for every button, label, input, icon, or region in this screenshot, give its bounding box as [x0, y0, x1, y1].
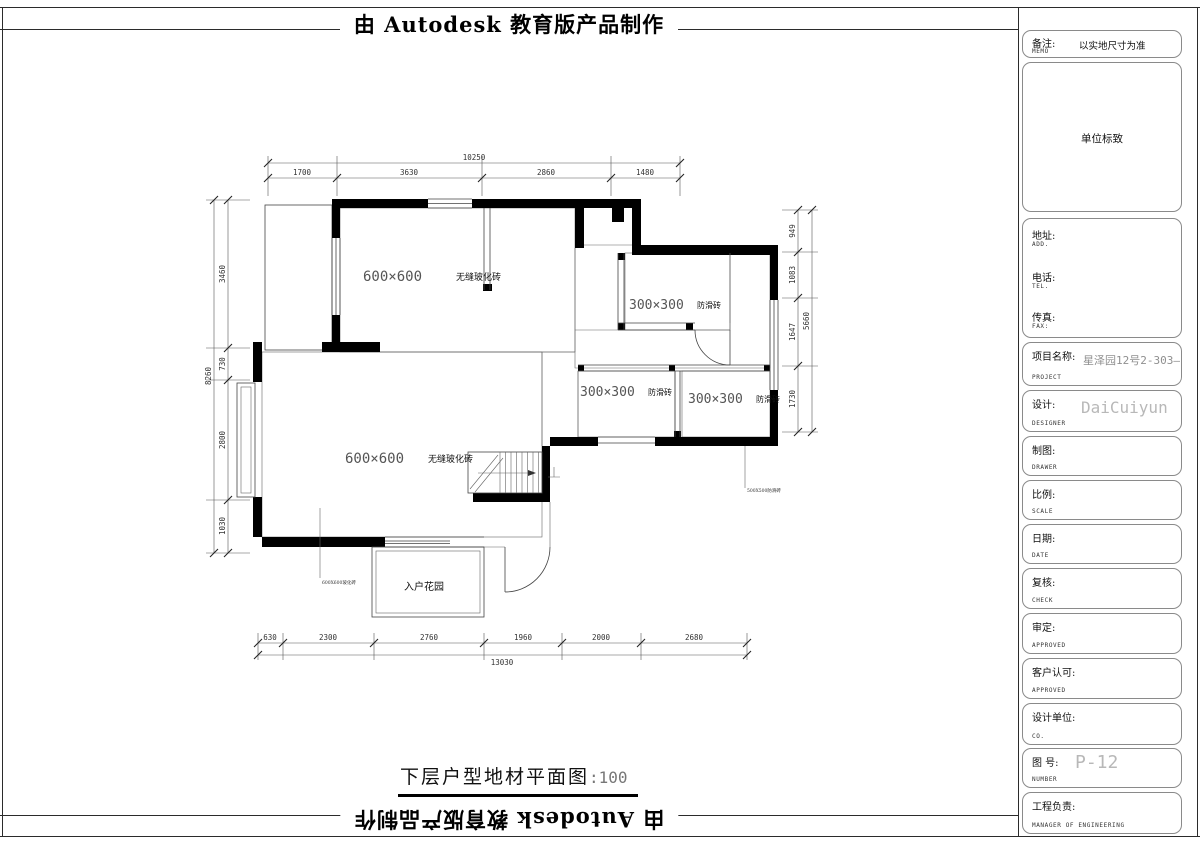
terrace-door	[598, 437, 655, 443]
entry-door	[505, 547, 550, 592]
dim-left-seg-3: 1030	[218, 516, 227, 535]
manager-sublabel: MANAGER OF ENGINEERING	[1032, 822, 1125, 829]
logo-value: 单位标致	[1023, 131, 1181, 146]
designer-value: DaiCuiyun	[1081, 398, 1168, 417]
titleblock-project: 项目名称: 星泽园12号2-303— PROJECT	[1022, 342, 1182, 386]
balcony-door	[332, 238, 340, 315]
living-tile-name: 无缝玻化砖	[428, 453, 473, 465]
dim-right-seg-0: 949	[788, 224, 797, 238]
window-right	[770, 300, 778, 390]
dim-left-seg-0: 3460	[218, 264, 227, 283]
bath-top-bottom-partition	[618, 323, 695, 330]
cad-sheet: 由 Autodesk 教育版产品制作 由 Autodesk 教育版产品制作 下层…	[0, 0, 1200, 843]
drawer-sublabel: DRAWER	[1032, 464, 1057, 471]
living-tile-size: 600×600	[345, 451, 404, 467]
porch-label: 入户花园	[404, 580, 444, 593]
titleblock-number: 图 号: P-12 NUMBER	[1022, 748, 1182, 788]
boundary-lines	[380, 245, 730, 547]
dim-left-seg-2: 2800	[218, 430, 227, 449]
dim-bottom-seg-1: 2300	[319, 633, 338, 642]
kitchen-tile-size: 300×300	[580, 385, 635, 400]
date-label: 日期:	[1032, 530, 1055, 545]
drawer-label: 制图:	[1032, 442, 1055, 457]
bath-right-tile-name: 防滑砖	[756, 394, 780, 404]
project-value: 星泽园12号2-303—	[1083, 352, 1180, 368]
dim-bottom-seg-2: 2760	[420, 633, 439, 642]
balcony-region	[265, 205, 332, 350]
titleblock-approve: 审定: APPROVED	[1022, 613, 1182, 654]
fax-sublabel: FAX:	[1032, 323, 1049, 330]
client-label: 客户认可:	[1032, 664, 1075, 679]
address-label: 地址:	[1032, 227, 1055, 242]
titleblock-date: 日期: DATE	[1022, 524, 1182, 564]
phone-sublabel: TEL.	[1032, 283, 1049, 290]
stair-arrow	[528, 470, 536, 476]
bay-window-outer	[237, 383, 255, 497]
client-sublabel: APPROVED	[1032, 687, 1066, 694]
bath-right-tile-size: 300×300	[688, 392, 743, 407]
dim-bottom-seg-5: 2680	[685, 633, 704, 642]
titleblock-scale: 比例: SCALE	[1022, 480, 1182, 520]
right-dimension-chain: 949 1083 1647 1730 5660	[782, 206, 818, 436]
kitchen-bath-divider	[675, 371, 680, 437]
titleblock-logo: 单位标致	[1022, 62, 1182, 212]
titleblock-memo: 备注: 以实地尺寸为准 MEMO	[1022, 30, 1182, 58]
dim-top-seg-3: 1480	[636, 168, 655, 177]
titleblock-drawer: 制图: DRAWER	[1022, 436, 1182, 476]
autodesk-banner-bottom-text: 由 Autodesk 教育版产品制作	[340, 805, 678, 835]
dim-right-seg-2: 1647	[788, 323, 797, 341]
top-dimension-chain: 10250 1700 3630 2860 1480	[264, 153, 684, 196]
number-sublabel: NUMBER	[1032, 776, 1057, 783]
check-sublabel: CHECK	[1032, 597, 1053, 604]
titleblock-client: 客户认可: APPROVED	[1022, 658, 1182, 699]
check-label: 复核:	[1032, 574, 1055, 589]
memo-value: 以实地尺寸为准	[1079, 38, 1146, 52]
autodesk-banner-top: 由 Autodesk 教育版产品制作	[0, 9, 1018, 39]
dim-left-overall: 8260	[204, 366, 213, 385]
upper-tile-name: 无缝玻化砖	[456, 271, 501, 283]
bath-top-left-partition	[618, 253, 624, 330]
note-right-text: 500X500防滑砖	[747, 487, 781, 494]
designer-sublabel: DESIGNER	[1032, 420, 1066, 427]
approve-label: 审定:	[1032, 619, 1055, 634]
company-label: 设计单位:	[1032, 709, 1075, 724]
project-label: 项目名称:	[1032, 348, 1075, 363]
bay-window-inner	[241, 387, 251, 493]
scale-sublabel: SCALE	[1032, 508, 1053, 515]
autodesk-banner-top-text: 由 Autodesk 教育版产品制作	[340, 9, 678, 39]
number-value: P-12	[1075, 752, 1118, 773]
scale-label: 比例:	[1032, 486, 1055, 501]
drawing-scale-text: :100	[589, 768, 628, 787]
window-top	[428, 199, 472, 208]
drawing-title-text: 下层户型地材平面图	[400, 766, 589, 788]
left-dimension-chain: 8260 3460 730 2800 1030	[204, 196, 250, 557]
designer-label: 设计:	[1032, 396, 1055, 411]
dim-bottom-seg-0: 630	[263, 633, 277, 642]
titleblock-manager: 工程负责: MANAGER OF ENGINEERING	[1022, 792, 1182, 834]
window-bottom	[385, 537, 484, 547]
dim-bottom-seg-4: 2000	[592, 633, 611, 642]
fax-label: 传真:	[1032, 309, 1055, 324]
autodesk-banner-bottom: 由 Autodesk 教育版产品制作	[0, 805, 1018, 835]
titleblock-designer: 设计: DaiCuiyun DESIGNER	[1022, 390, 1182, 432]
bath-top-region	[625, 253, 730, 330]
dim-right-seg-1: 1083	[788, 266, 797, 284]
date-sublabel: DATE	[1032, 552, 1049, 559]
bath-top-tile-size: 300×300	[629, 298, 684, 313]
floor-plan: 入户花园 600×600 无缝玻化砖 600×600 无缝玻化砖 300×300…	[0, 0, 1018, 843]
dim-top-overall: 10250	[463, 153, 486, 162]
titleblock-company: 设计单位: CO.	[1022, 703, 1182, 745]
project-sublabel: PROJECT	[1032, 374, 1062, 381]
kitchen-region	[578, 371, 675, 437]
porch: 入户花园	[372, 547, 484, 617]
living-region	[262, 352, 542, 537]
memo-sublabel: MEMO	[1032, 48, 1049, 55]
leader-notes: 600X600玻化砖 500X500防滑砖	[320, 446, 781, 586]
manager-label: 工程负责:	[1032, 798, 1075, 813]
titleblock-contact: 地址: ADD. 电话: TEL. 传真: FAX:	[1022, 218, 1182, 338]
dim-top-seg-0: 1700	[293, 168, 312, 177]
frame-line-right	[1197, 7, 1198, 836]
upper-tile-size: 600×600	[363, 269, 422, 285]
bath-top-door	[695, 330, 730, 365]
number-label: 图 号:	[1032, 754, 1059, 769]
dim-bottom-seg-3: 1960	[514, 633, 533, 642]
dim-right-seg-3: 1730	[788, 389, 797, 408]
kitchen-tile-name: 防滑砖	[648, 387, 672, 397]
approve-sublabel: APPROVED	[1032, 642, 1066, 649]
drawing-title: 下层户型地材平面图:100	[398, 762, 638, 797]
bottom-dimension-chain: 630 2300 2760 1960 2000 2680 13030	[254, 633, 751, 667]
dim-right-overall: 5660	[802, 311, 811, 330]
dim-bottom-overall: 13030	[491, 658, 514, 667]
dim-left-seg-1: 730	[218, 357, 227, 371]
note-left-text: 600X600玻化砖	[322, 579, 356, 586]
bath-top-tile-name: 防滑砖	[697, 300, 721, 310]
titleblock-separator-line	[1018, 7, 1019, 836]
dim-top-seg-1: 3630	[400, 168, 419, 177]
titleblock-check: 复核: CHECK	[1022, 568, 1182, 609]
company-sublabel: CO.	[1032, 733, 1045, 740]
address-sublabel: ADD.	[1032, 241, 1049, 248]
dim-top-seg-2: 2860	[537, 168, 556, 177]
phone-label: 电话:	[1032, 269, 1055, 284]
